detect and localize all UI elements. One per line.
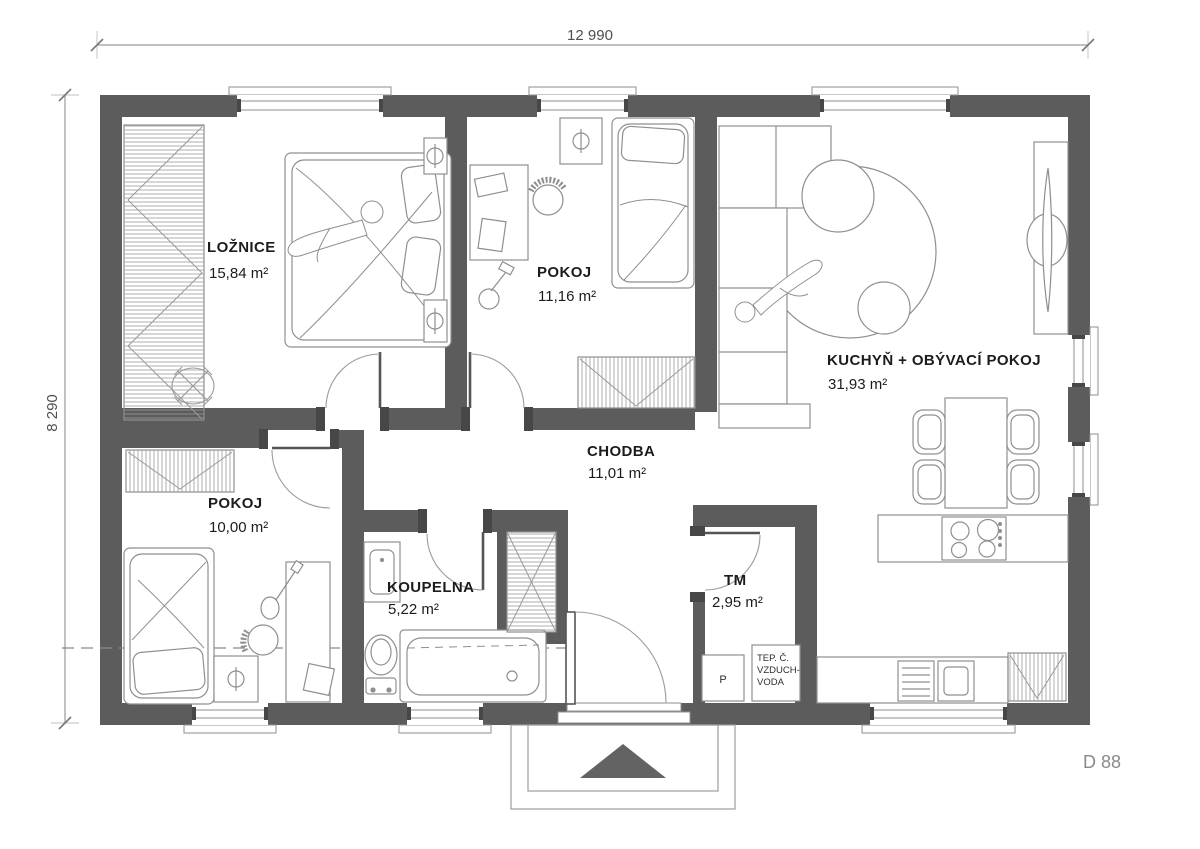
wall-closet-left bbox=[497, 532, 507, 632]
drawing-number: D 88 bbox=[1083, 752, 1121, 772]
wall-pokoj-bottom-top-1 bbox=[122, 430, 268, 448]
hall-closet bbox=[507, 532, 556, 632]
dining-chair bbox=[1007, 460, 1039, 504]
kitchen-bottom-counter bbox=[817, 657, 1008, 703]
pouf-large bbox=[802, 160, 874, 232]
single-bed bbox=[124, 548, 214, 704]
wall-bath-top-1 bbox=[342, 510, 427, 532]
room-label-pokoj-bottom: POKOJ bbox=[208, 495, 263, 512]
window-pokoj-bottom bbox=[184, 703, 276, 733]
desk bbox=[470, 165, 528, 260]
window-kitchen-top bbox=[812, 87, 958, 117]
room-area-koupelna: 5,22 m² bbox=[388, 601, 439, 618]
wardrobe bbox=[124, 125, 204, 420]
wardrobe bbox=[126, 450, 234, 492]
amp-box bbox=[303, 664, 334, 696]
entrance-porch bbox=[511, 725, 735, 809]
window-pokoj-top bbox=[529, 87, 636, 117]
nightstand bbox=[214, 656, 258, 702]
window-loznice bbox=[229, 87, 391, 117]
heat-pump-label-line3: VODA bbox=[757, 677, 785, 688]
room-area-loznice: 15,84 m² bbox=[209, 265, 268, 282]
window-bathroom bbox=[399, 703, 491, 733]
room-area-pokoj-top: 11,16 m² bbox=[538, 288, 596, 305]
pouf-small bbox=[858, 282, 910, 334]
room-area-chodba: 11,01 m² bbox=[588, 465, 646, 482]
dining-chair bbox=[913, 460, 945, 504]
dining-chair bbox=[913, 410, 945, 454]
dining-chair bbox=[1007, 410, 1039, 454]
wall-pokoj-kitchen bbox=[695, 117, 717, 412]
washing-machine-label: P bbox=[719, 674, 726, 686]
kitchen-peninsula-counter bbox=[878, 515, 1068, 562]
cooktop bbox=[942, 517, 1006, 560]
room-area-pokoj-bottom: 10,00 m² bbox=[209, 519, 268, 536]
floor-plan-drawing: 12 990 8 290 bbox=[0, 0, 1200, 849]
dimension-height-label: 8 290 bbox=[44, 394, 61, 432]
wall-pokoj-bath bbox=[342, 448, 364, 703]
heat-pump-label-line2: VZDUCH- bbox=[757, 665, 800, 676]
wardrobe bbox=[578, 357, 695, 408]
wall-socket-icon bbox=[424, 300, 447, 342]
toilet bbox=[365, 635, 397, 694]
wall-tm-top bbox=[693, 505, 817, 527]
room-label-pokoj-top: POKOJ bbox=[537, 264, 592, 281]
room-label-chodba: CHODBA bbox=[587, 443, 655, 460]
nightstand bbox=[560, 118, 602, 164]
room-label-koupelna: KOUPELNA bbox=[387, 579, 474, 596]
wall-bath-top-2 bbox=[483, 510, 568, 532]
wall-socket-icon bbox=[424, 138, 447, 174]
office-chair bbox=[531, 180, 564, 215]
window-kitchen-bottom bbox=[862, 703, 1015, 733]
room-label-loznice: LOŽNICE bbox=[207, 238, 276, 256]
room-area-tm: 2,95 m² bbox=[712, 594, 763, 611]
corner-cabinet bbox=[1008, 653, 1066, 701]
room-label-kitchen: KUCHYŇ + OBÝVACÍ POKOJ bbox=[827, 351, 1041, 369]
dimension-width-label: 12 990 bbox=[567, 27, 613, 44]
single-bed bbox=[612, 118, 694, 288]
bathtub bbox=[400, 630, 546, 702]
wall-hall-3 bbox=[524, 408, 695, 430]
window-right-2 bbox=[1068, 434, 1098, 505]
heat-pump-label-line1: TEP. Č. bbox=[757, 653, 789, 664]
entrance-arrow-icon bbox=[580, 744, 666, 778]
room-label-tm: TM bbox=[724, 572, 746, 589]
floor-plan-canvas: 12 990 8 290 bbox=[0, 0, 1200, 849]
room-area-kitchen: 31,93 m² bbox=[828, 376, 887, 393]
window-right-1 bbox=[1068, 327, 1098, 395]
dining-table bbox=[913, 398, 1039, 508]
wall-hall-2 bbox=[380, 408, 470, 430]
